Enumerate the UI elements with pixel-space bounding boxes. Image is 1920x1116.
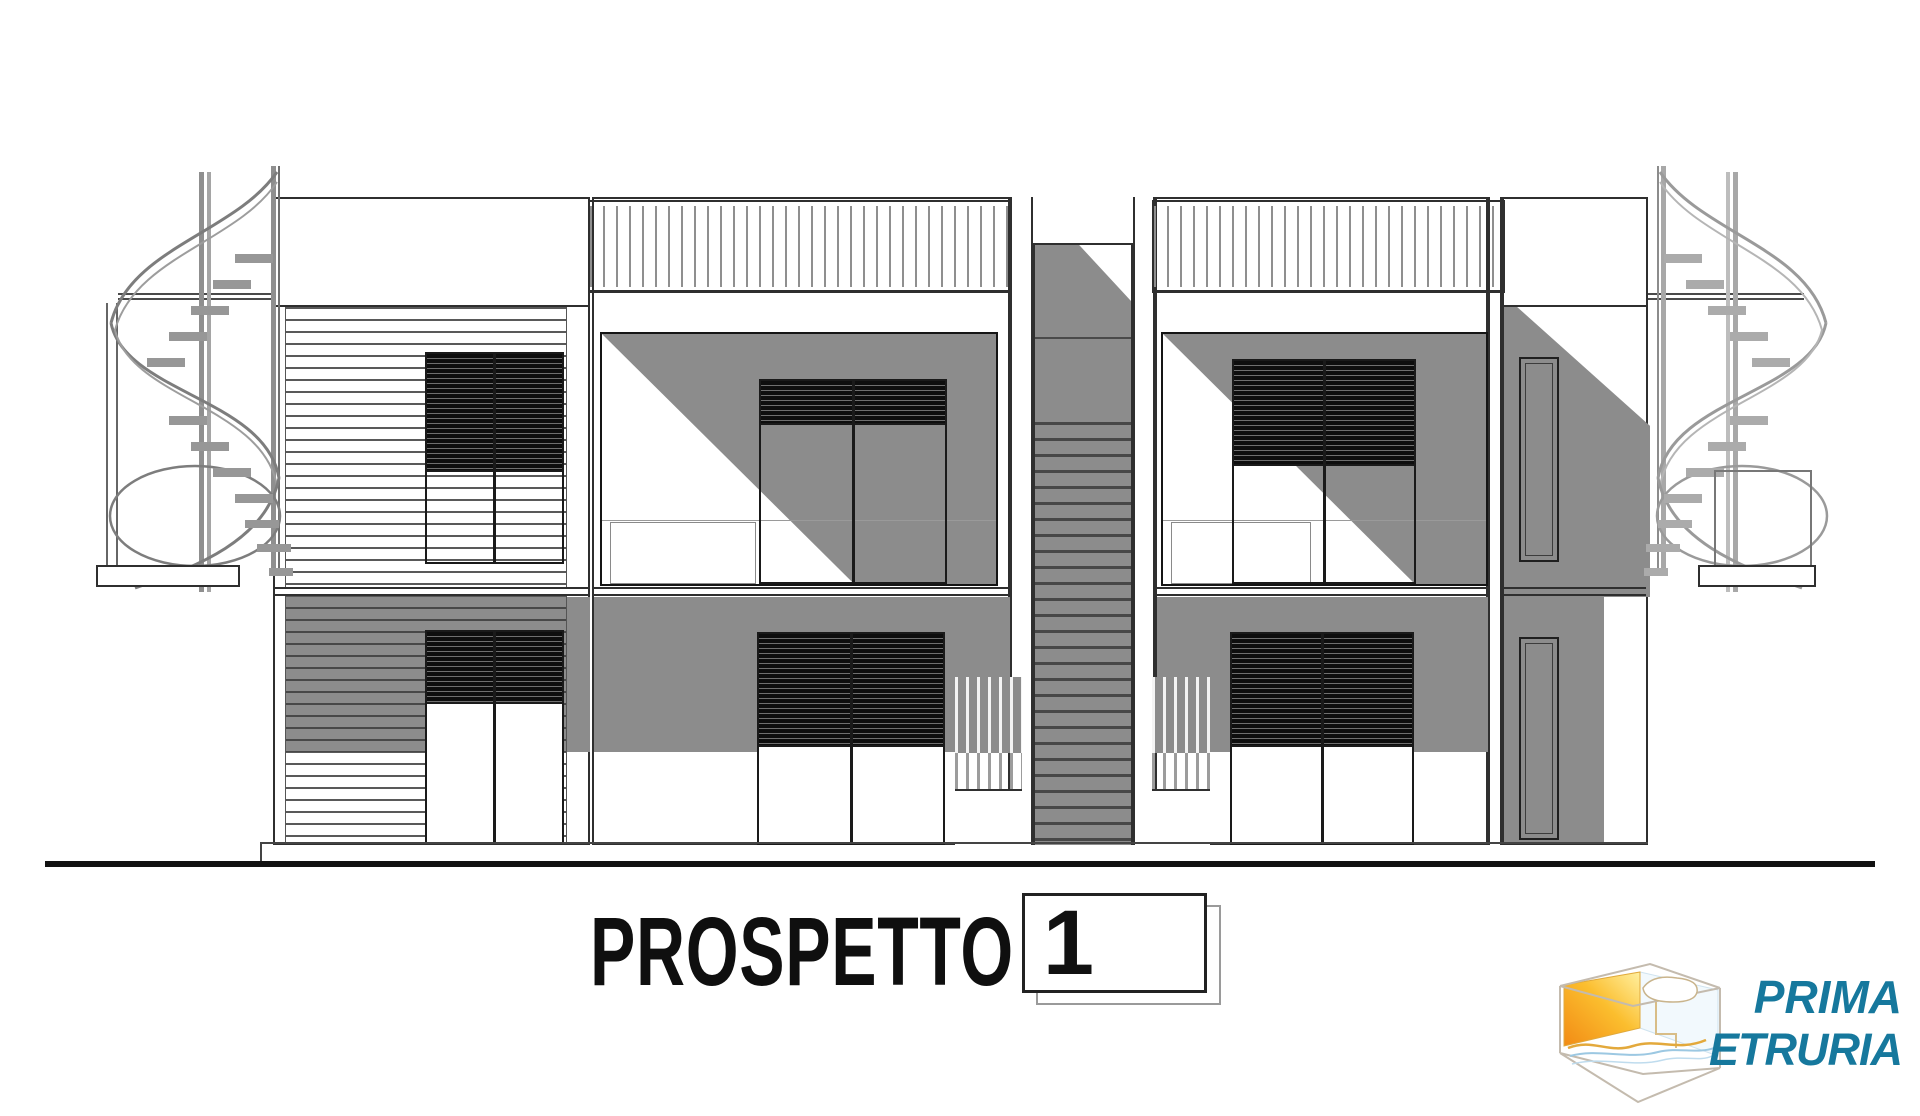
building-base-line xyxy=(260,842,1648,844)
sliding-door-with-blinds xyxy=(759,379,947,584)
tower-shadow-cutoff xyxy=(1035,245,1131,301)
recessed-balcony xyxy=(1161,332,1488,586)
left-unit-wall xyxy=(273,197,590,845)
roof-railing-left xyxy=(588,200,1012,293)
ground-line xyxy=(45,861,1875,867)
door-mullion xyxy=(850,634,853,843)
lower-narrow-door xyxy=(1519,637,1559,840)
floor-slab-band xyxy=(1157,587,1486,596)
floor-slab-band xyxy=(275,587,588,596)
parapet-line xyxy=(1504,305,1646,307)
slat-fence-right xyxy=(1152,677,1210,753)
door-mullion xyxy=(1323,361,1326,582)
wall-pier xyxy=(1488,197,1502,845)
fence-base-wall xyxy=(955,789,1022,845)
elevation-sheet: PROSPETTO 1 PRIMA ETRURIA xyxy=(0,0,1920,1116)
logo-wordmark: PRIMA ETRURIA xyxy=(1690,974,1902,1072)
center-left-unit-wall xyxy=(592,197,1010,845)
right-balcony-slab xyxy=(1698,565,1816,587)
stair-treads xyxy=(1035,422,1131,845)
central-stair-tower xyxy=(1033,243,1133,845)
door-frame xyxy=(1525,643,1553,834)
slat-fence-right-lower xyxy=(1152,753,1210,789)
logo-brand-line2: ETRURIA xyxy=(1690,1027,1902,1072)
tower-landing-line xyxy=(1035,337,1131,339)
upper-narrow-door xyxy=(1519,357,1559,562)
window-mullion xyxy=(493,632,496,842)
lower-window-with-blinds xyxy=(425,630,564,844)
left-spiral-staircase xyxy=(95,158,295,598)
recessed-balcony xyxy=(600,332,998,586)
sheet-number: 1 xyxy=(1043,891,1094,996)
floor-slab-band xyxy=(594,587,1008,596)
slat-fence-left-lower xyxy=(955,753,1022,789)
ground-door-with-blinds xyxy=(757,632,945,845)
spiral-stair-icon xyxy=(95,158,295,598)
left-balcony-slab xyxy=(96,565,240,587)
sliding-door-with-blinds xyxy=(1232,359,1416,584)
roof-railing-right xyxy=(1152,200,1505,293)
ground-door-with-blinds xyxy=(1230,632,1414,845)
logo-brand-line1: PRIMA xyxy=(1690,974,1902,1020)
slat-fence-left xyxy=(955,677,1022,753)
drawing-title: PROSPETTO xyxy=(590,903,1014,1000)
balcony-parapet-panel xyxy=(610,522,756,584)
sheet-number-box: 1 xyxy=(1022,893,1207,993)
fence-base-wall xyxy=(1152,789,1210,845)
upper-window-with-blinds xyxy=(425,352,564,564)
right-balcony-rail-frame xyxy=(1714,470,1812,568)
floor-slab-band xyxy=(1504,587,1646,596)
door-frame xyxy=(1525,363,1553,556)
right-wing-wall xyxy=(1502,197,1648,845)
window-mullion xyxy=(493,354,496,562)
door-mullion xyxy=(1321,634,1324,843)
door-mullion xyxy=(852,381,855,582)
